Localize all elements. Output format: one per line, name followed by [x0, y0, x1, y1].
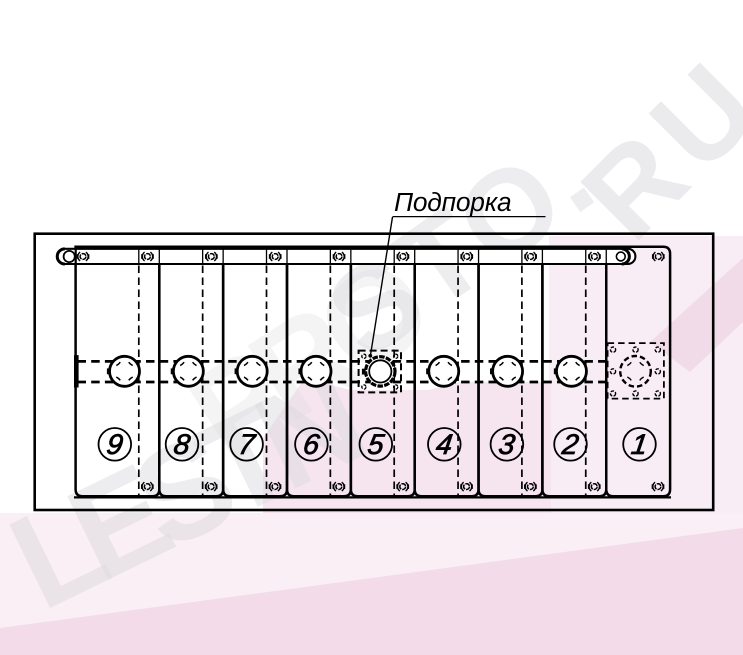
svg-text:Подпорка: Подпорка: [394, 187, 511, 217]
